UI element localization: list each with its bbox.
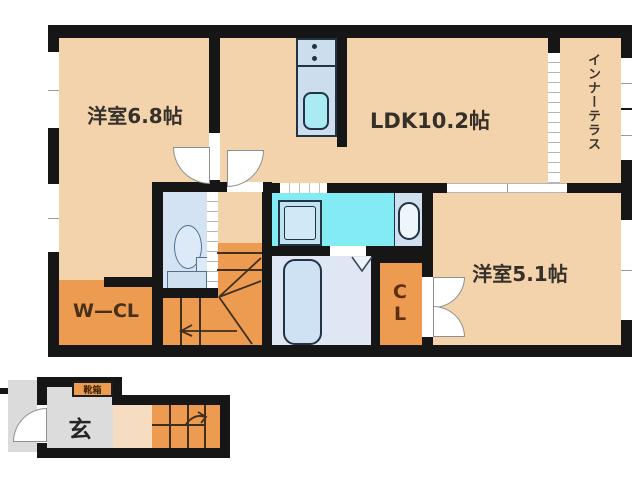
wall-ldk-room51: [567, 183, 621, 193]
window: [621, 220, 632, 320]
washroom-sliding-door: [280, 183, 327, 193]
window: [48, 184, 59, 252]
window: [48, 52, 59, 128]
wall-room51-left: [422, 337, 433, 350]
room-label-cl: CL: [389, 281, 411, 339]
window: [621, 58, 632, 108]
stair-step: [180, 298, 182, 345]
wall-room51-left: [422, 192, 433, 277]
entrance-hall-floor: [113, 405, 152, 448]
window: [621, 110, 632, 160]
porch-wall-stub: [0, 388, 8, 394]
wall-terrace-divider: [548, 38, 560, 53]
stair-step: [187, 405, 189, 448]
wall-washroom-top: [327, 183, 430, 193]
terrace-sliding-door: [548, 53, 560, 183]
bathroom-door-opening: [330, 246, 366, 256]
stair-step: [217, 269, 262, 271]
kitchen-stove-section: [296, 38, 337, 67]
stove-burner-dot: [312, 44, 317, 49]
kitchen-sink: [303, 92, 329, 130]
wall-toilet-left: [152, 182, 163, 350]
floor-plan: 洋室6.8帖 LDK10.2帖 洋室5.1帖 インナーテラス W—CL CL 靴…: [0, 0, 640, 480]
stove-burner-dot: [312, 56, 317, 61]
stair-step: [199, 298, 201, 345]
wall-1f-left: [37, 377, 47, 405]
entrance-label: 玄: [62, 410, 98, 444]
wall-washroom-top: [272, 183, 280, 193]
wall-1f-bottom: [37, 448, 230, 458]
wall-stairs-washroom: [262, 182, 272, 350]
stairs-upper-floor: [217, 243, 262, 345]
wash-basin: [398, 202, 420, 240]
stair-step: [217, 252, 262, 254]
wall-bathroom-closet: [371, 256, 380, 350]
room-label-western68: 洋室6.8帖: [60, 100, 210, 129]
wall-1f-top2: [112, 395, 230, 405]
wall-wcl-top: [104, 277, 152, 287]
room-label-wcl: W—CL: [60, 300, 152, 322]
shoe-cabinet-label: 靴箱: [72, 383, 113, 396]
stairs-lower-run-floor: [163, 298, 217, 345]
closet-door-opening: [422, 277, 433, 337]
stair-step: [152, 424, 206, 426]
door-opening-room68: [209, 133, 220, 180]
room-label-western51: 洋室5.1帖: [440, 258, 600, 287]
wall-1f-left: [37, 443, 47, 458]
washing-machine: [284, 206, 316, 240]
wall-room68-ldk: [209, 38, 220, 135]
outer-wall-bottom: [48, 345, 632, 357]
room-label-ldk: LDK10.2帖: [340, 105, 520, 135]
wall-hall-top: [218, 182, 227, 192]
bathtub: [283, 259, 322, 345]
stair-step: [204, 405, 206, 448]
stairs-1f-floor: [152, 405, 220, 448]
stair-step: [169, 405, 171, 448]
outer-wall-top: [48, 25, 632, 38]
room-label-inner-terrace: インナーテラス: [583, 53, 602, 183]
wall-washroom-bathroom: [272, 246, 330, 256]
ldk-room51-sliding-door: [447, 183, 567, 193]
toilet-sliding-door: [207, 192, 218, 288]
wall-toilet-bottom: [152, 288, 218, 298]
